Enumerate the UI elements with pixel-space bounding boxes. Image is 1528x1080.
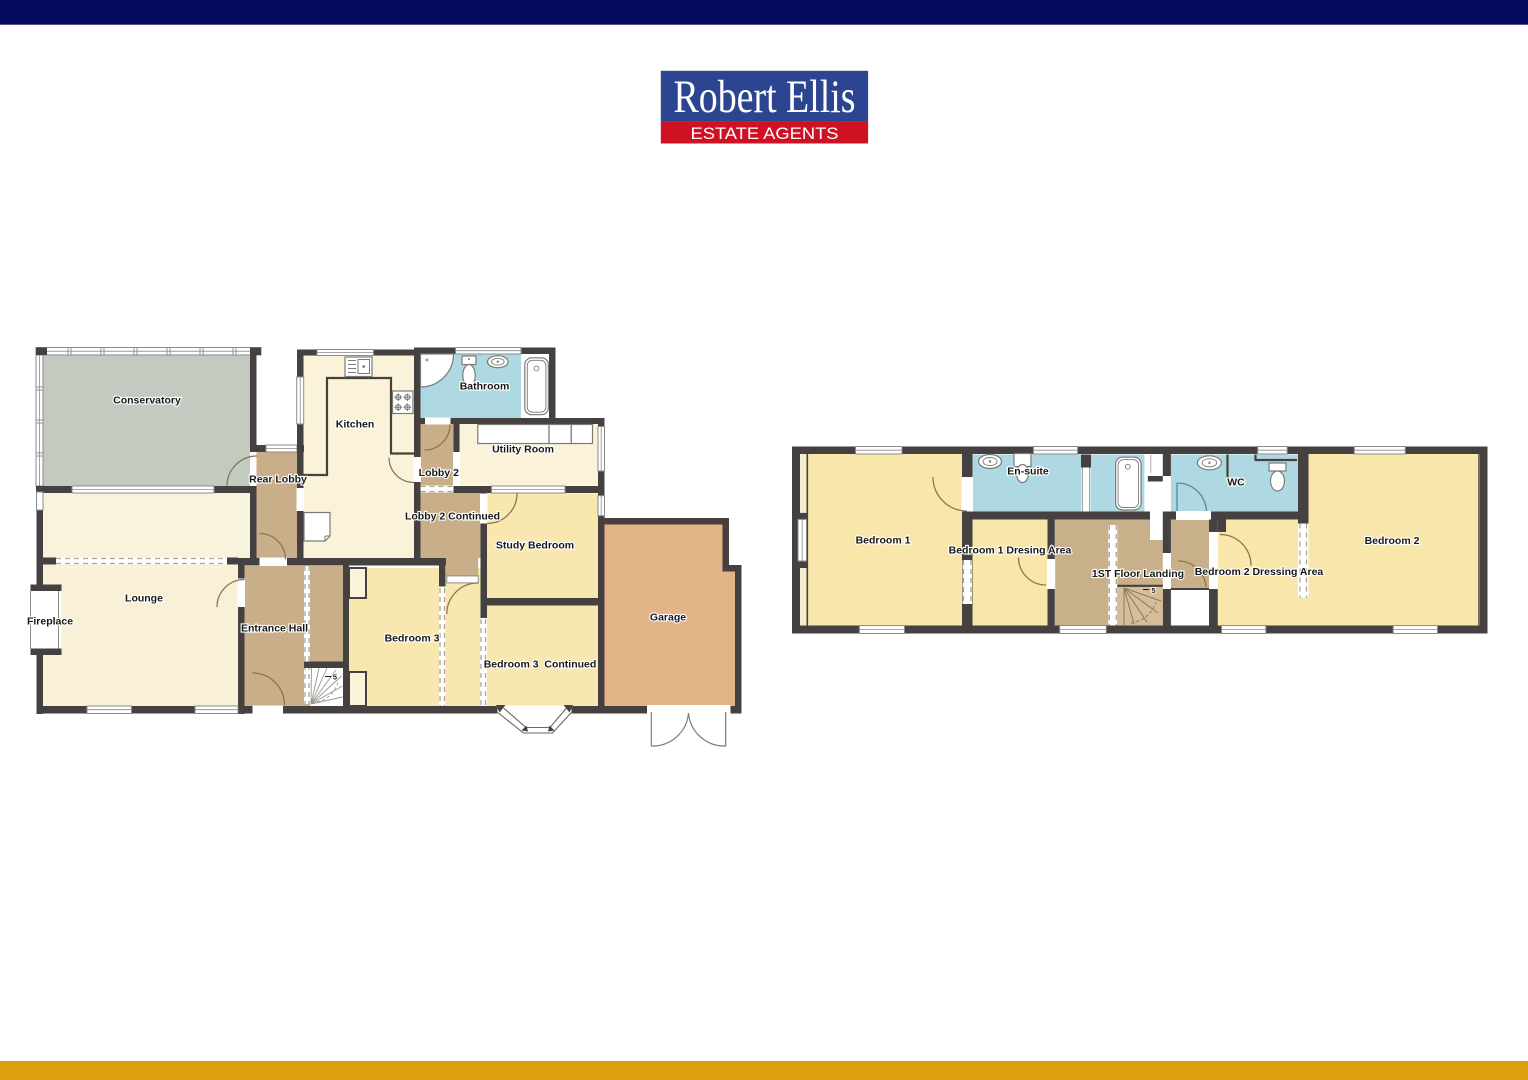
svg-text:5: 5 xyxy=(1151,586,1155,595)
svg-text:Bedroom 1 Dresing Area: Bedroom 1 Dresing Area xyxy=(949,545,1072,557)
svg-text:Lounge: Lounge xyxy=(125,593,163,605)
svg-text:En-suite: En-suite xyxy=(1007,466,1049,478)
svg-text:Entrance Hall: Entrance Hall xyxy=(241,623,308,635)
svg-text:WC: WC xyxy=(1227,477,1245,489)
svg-text:Kitchen: Kitchen xyxy=(336,419,375,431)
svg-text:Bedroom 2 Dressing Area: Bedroom 2 Dressing Area xyxy=(1195,566,1324,578)
svg-text:Fireplace: Fireplace xyxy=(27,616,73,628)
svg-text:Utility Room: Utility Room xyxy=(492,444,554,456)
svg-text:Lobby 2: Lobby 2 xyxy=(419,467,459,479)
svg-text:Bedroom 2: Bedroom 2 xyxy=(1365,535,1420,547)
svg-text:Conservatory: Conservatory xyxy=(113,395,181,407)
svg-text:Bedroom 3 Continued: Bedroom 3 Continued xyxy=(484,659,597,671)
svg-text:Lobby 2 Continued: Lobby 2 Continued xyxy=(405,511,500,523)
svg-text:Bathroom: Bathroom xyxy=(460,381,510,393)
svg-text:Study Bedroom: Study Bedroom xyxy=(496,540,574,552)
svg-text:ESTATE AGENTS: ESTATE AGENTS xyxy=(691,125,839,143)
svg-text:Bedroom 3: Bedroom 3 xyxy=(385,633,440,645)
svg-text:Rear Lobby: Rear Lobby xyxy=(249,474,307,486)
svg-text:Robert Ellis: Robert Ellis xyxy=(674,71,856,123)
svg-text:5: 5 xyxy=(333,673,337,682)
svg-text:Bedroom 1: Bedroom 1 xyxy=(856,535,911,547)
svg-text:Garage: Garage xyxy=(650,612,686,624)
svg-text:1ST Floor Landing: 1ST Floor Landing xyxy=(1092,568,1184,580)
